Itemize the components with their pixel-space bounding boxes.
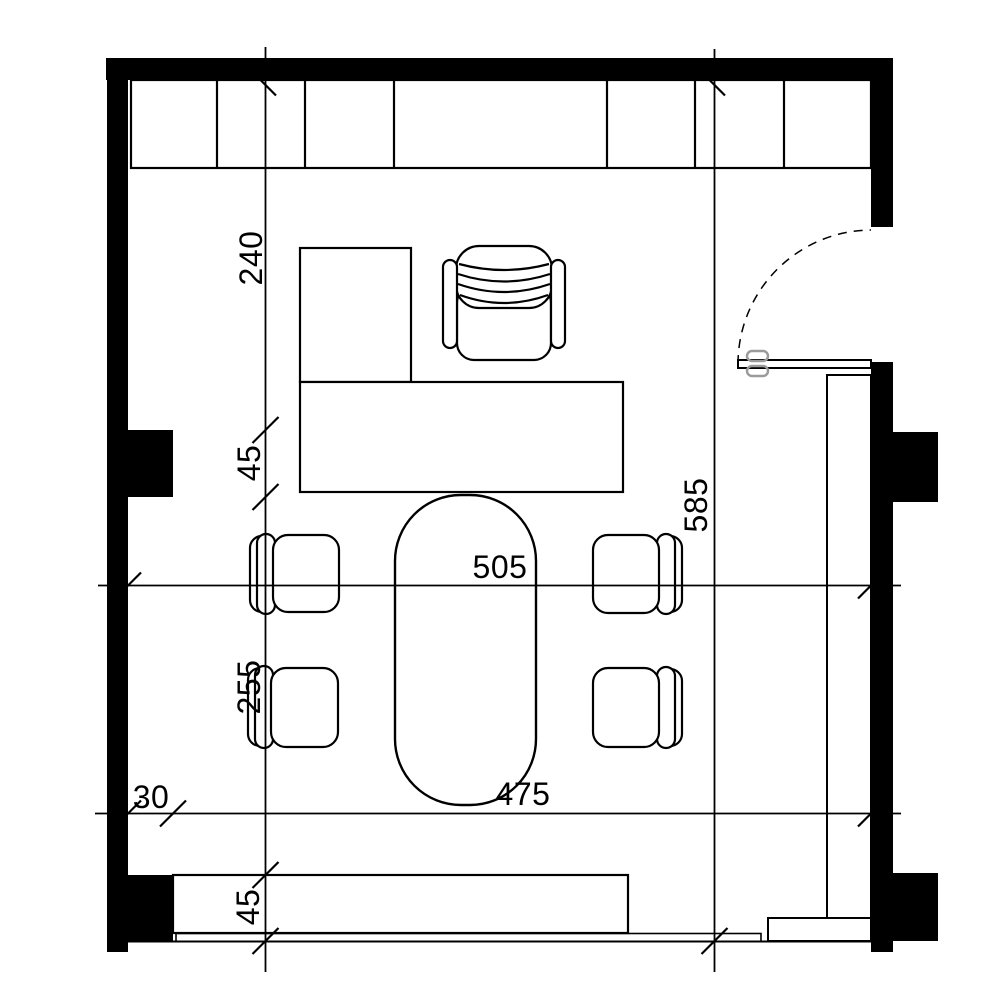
dimension-label-255: 255	[233, 660, 265, 715]
wall-pier-right-bottom	[893, 873, 938, 941]
walls	[106, 58, 938, 952]
chair-seat	[593, 535, 659, 613]
dimension-label-585: 585	[680, 478, 712, 533]
tall-cabinet-right	[827, 375, 871, 918]
dimension-label-30: 30	[133, 781, 170, 813]
wall-cabinet-top-outline	[131, 80, 871, 168]
chair-seat	[273, 535, 339, 612]
wall-right-upper	[871, 58, 893, 227]
chair-seat	[271, 668, 338, 747]
desk-return	[300, 248, 411, 382]
meeting-chair-top-right	[593, 534, 682, 614]
window-glazing	[176, 934, 761, 942]
dimension-label-45-lower: 45	[232, 889, 264, 926]
meeting-table	[395, 495, 536, 805]
office-chair	[443, 246, 565, 360]
floor-plan-drawing	[0, 0, 1000, 1000]
office-chair-armrest-left	[443, 260, 457, 348]
floor-plan: 240 45 255 45 585 505 475 30	[0, 0, 1000, 1000]
dimension-label-475: 475	[496, 778, 551, 810]
wall-pier-left-bottom	[128, 875, 173, 941]
wall-pier-left-middle	[128, 430, 173, 497]
wall-pier-right-middle	[893, 432, 938, 502]
chair-seat	[593, 668, 659, 747]
wall-left	[107, 58, 128, 952]
meeting-chair-bottom-right	[593, 667, 682, 748]
wall-cabinet-top	[131, 80, 871, 168]
office-chair-armrest-right	[551, 260, 565, 348]
desk	[300, 382, 623, 492]
window-bottom	[128, 934, 871, 942]
wall-top	[106, 58, 893, 80]
meeting-chair-top-left	[250, 534, 339, 614]
sill-step-bottom-right	[768, 918, 871, 941]
dimension-label-505: 505	[473, 551, 528, 583]
door-swing-arc	[738, 230, 871, 364]
wall-right-lower	[871, 362, 893, 952]
dimension-label-240: 240	[235, 231, 267, 286]
dimension-label-45-upper: 45	[233, 445, 265, 482]
